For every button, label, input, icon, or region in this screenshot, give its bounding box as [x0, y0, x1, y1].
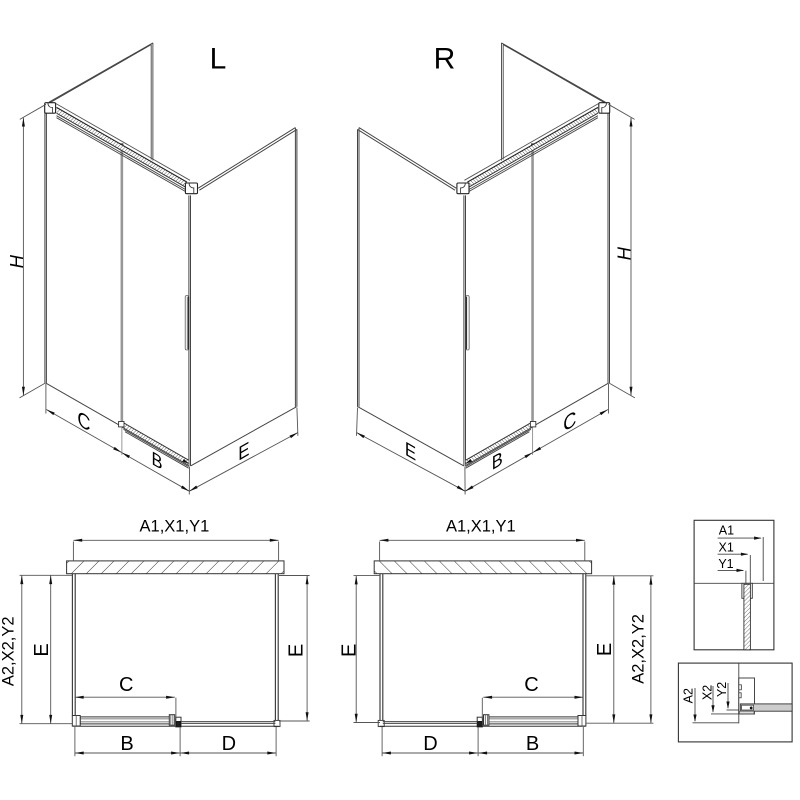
svg-text:E: E [594, 643, 616, 656]
svg-text:X2: X2 [700, 685, 714, 700]
svg-text:X1: X1 [719, 541, 734, 555]
svg-text:A1,X1,Y1: A1,X1,Y1 [446, 518, 516, 536]
svg-text:A2,X2,Y2: A2,X2,Y2 [630, 614, 648, 684]
svg-text:E: E [285, 644, 307, 657]
svg-text:D: D [222, 733, 236, 755]
svg-text:A1,X1,Y1: A1,X1,Y1 [140, 518, 210, 536]
svg-text:A2,X2,Y2: A2,X2,Y2 [0, 616, 18, 686]
svg-text:E: E [31, 643, 53, 656]
svg-text:L: L [210, 43, 227, 76]
svg-text:B: B [526, 733, 539, 755]
svg-text:H: H [6, 254, 27, 268]
svg-text:A2: A2 [682, 688, 696, 703]
svg-text:E: E [338, 644, 360, 657]
svg-text:A1: A1 [719, 523, 734, 537]
svg-text:B: B [120, 733, 133, 755]
svg-text:Y1: Y1 [718, 557, 733, 571]
svg-text:Y2: Y2 [715, 682, 729, 697]
svg-text:H: H [614, 246, 635, 260]
svg-text:D: D [423, 733, 437, 755]
svg-text:R: R [434, 43, 456, 76]
svg-text:C: C [524, 674, 538, 696]
svg-text:C: C [119, 674, 133, 696]
